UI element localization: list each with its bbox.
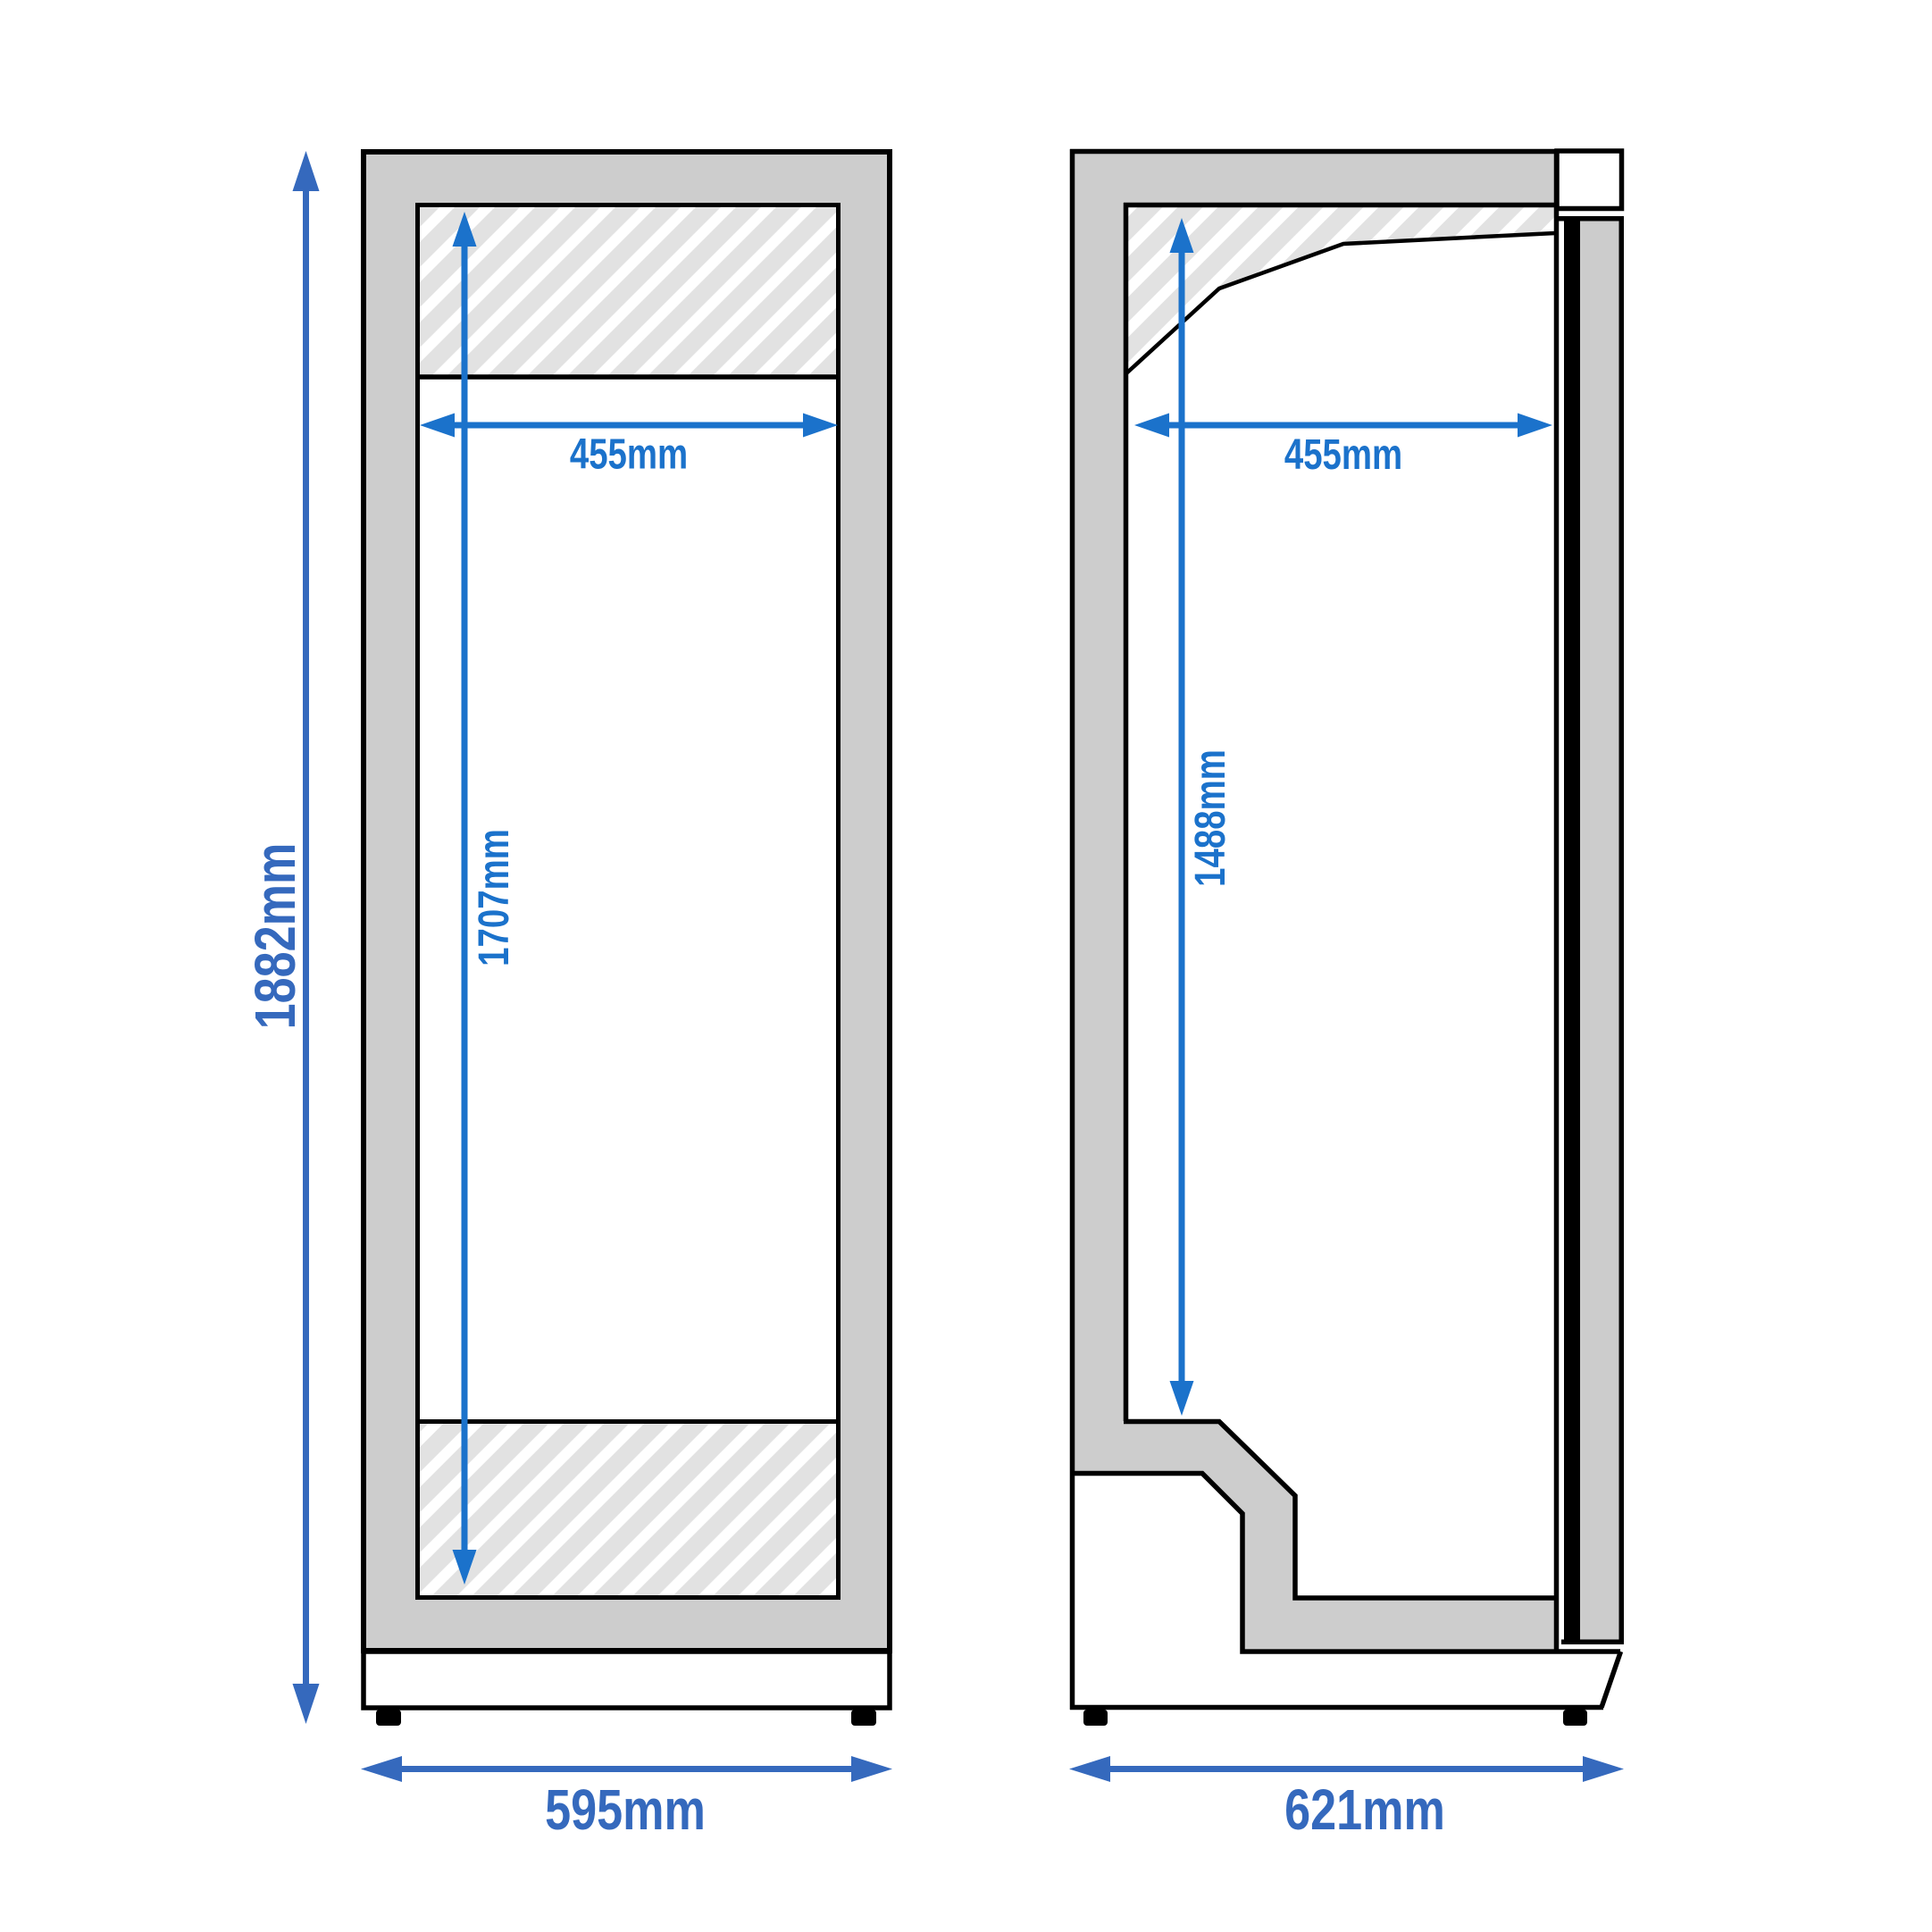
svg-text:595mm: 595mm xyxy=(545,1778,706,1842)
svg-text:1707mm: 1707mm xyxy=(471,829,518,966)
svg-text:455mm: 455mm xyxy=(1284,431,1402,479)
svg-text:621mm: 621mm xyxy=(1284,1778,1445,1842)
svg-text:455mm: 455mm xyxy=(570,431,688,479)
svg-text:1488mm: 1488mm xyxy=(1187,749,1234,887)
svg-text:1882mm: 1882mm xyxy=(244,843,307,1030)
